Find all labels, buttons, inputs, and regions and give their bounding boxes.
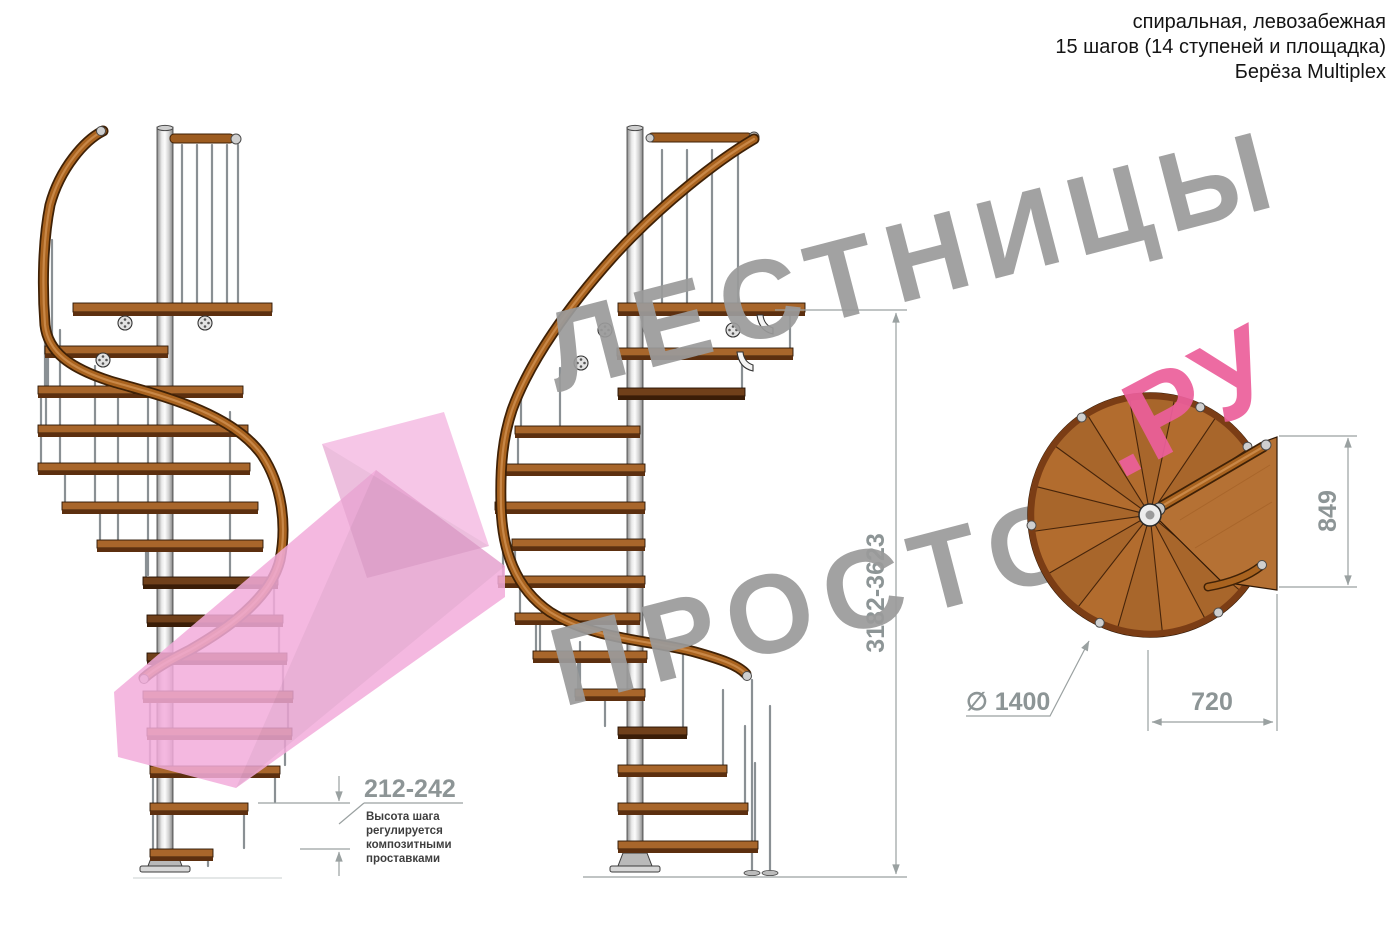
platform-depth-value: 849	[1314, 490, 1342, 532]
step-height-value: 212-242	[364, 775, 456, 803]
pole-base-plate	[610, 866, 660, 872]
platform-rail-bar	[170, 134, 234, 143]
platform-rail-bar	[648, 133, 752, 142]
step-hub-disc	[118, 316, 132, 330]
pole-top-cap	[157, 125, 173, 130]
dimension-platform-depth: 849	[1279, 436, 1357, 587]
drawing-sheet: 212-242 Высота шага регулируется компози…	[0, 0, 1400, 940]
title-line-material: Берёза Multiplex	[1235, 61, 1386, 83]
pole-base-plate	[140, 866, 190, 872]
title-line-steps: 15 шагов (14 ступеней и площадка)	[1055, 36, 1386, 58]
pole-top-cap	[627, 125, 643, 130]
title-block: спиральная, левозабежная 15 шагов (14 ст…	[1055, 11, 1386, 83]
step-height-note-line2: регулируется	[366, 825, 443, 837]
step-hub-disc	[96, 353, 110, 367]
step-hub-disc	[198, 316, 212, 330]
technical-drawing: 212-242 Высота шага регулируется компози…	[0, 0, 1400, 940]
diameter-value: ∅ 1400	[966, 688, 1050, 716]
title-line-type: спиральная, левозабежная	[1133, 11, 1386, 33]
step-height-note-line4: проставками	[366, 853, 440, 865]
step-height-note-line1: Высота шага	[366, 811, 440, 823]
dimension-step-height: 212-242 Высота шага регулируется компози…	[258, 775, 463, 876]
step-height-note-line3: композитными	[366, 839, 452, 851]
platform-width-value: 720	[1191, 688, 1233, 716]
dimension-diameter: ∅ 1400	[966, 641, 1089, 716]
